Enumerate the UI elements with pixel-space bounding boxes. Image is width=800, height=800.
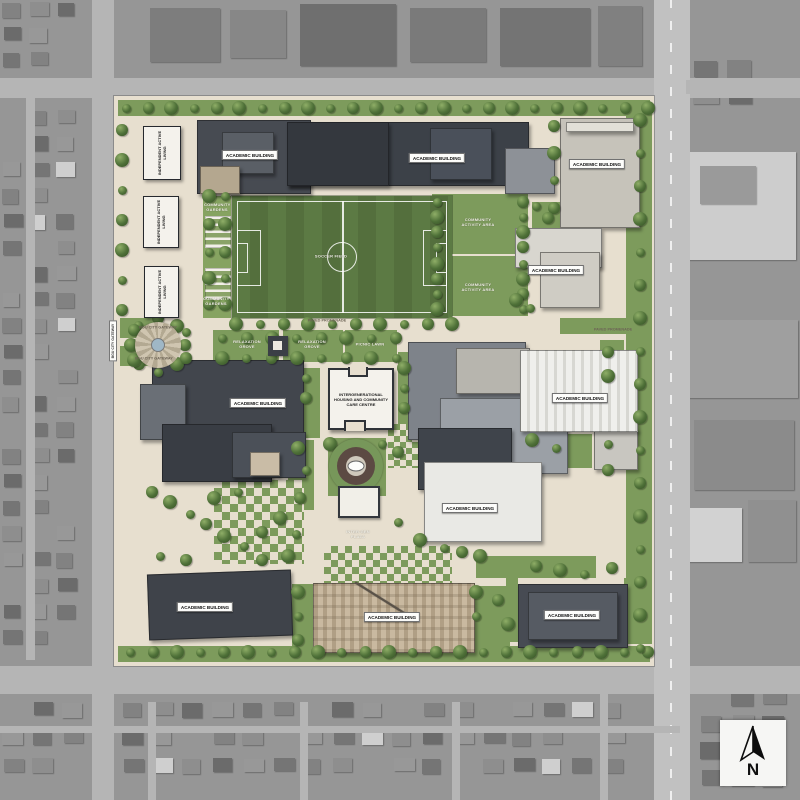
tree xyxy=(530,104,539,113)
tree xyxy=(289,646,301,658)
label-bgu-city-gateway-edge: BGU CITY GATEWAY xyxy=(109,321,117,362)
tree xyxy=(202,189,216,203)
building-roof xyxy=(594,428,638,470)
tree xyxy=(492,594,504,606)
aerial-house xyxy=(57,605,75,619)
building-roof xyxy=(566,122,634,132)
independent-active-living-building-2: INDEPENDENT ACTIVE LIVING xyxy=(143,196,179,248)
intergenerational-centre-building: INTERGENERATIONAL HOUSING AND COMMUNITY … xyxy=(328,368,394,430)
tree xyxy=(182,328,191,337)
tree xyxy=(279,102,291,114)
road xyxy=(26,98,35,660)
north-letter: N xyxy=(747,760,759,780)
aerial-building xyxy=(598,6,642,66)
tree xyxy=(634,477,646,489)
tree xyxy=(392,354,401,363)
tree xyxy=(400,320,409,329)
tree xyxy=(207,491,221,505)
road xyxy=(300,702,308,800)
aerial-building xyxy=(410,8,486,62)
label-academic-building-top-right: ACADEMIC BUILDING xyxy=(569,159,625,169)
tree xyxy=(400,384,409,393)
aerial-house xyxy=(3,162,20,176)
tree xyxy=(390,332,402,344)
tree xyxy=(413,533,427,547)
inter-gen-plaza-pavilion xyxy=(338,486,380,518)
tree xyxy=(519,260,528,269)
building-roof xyxy=(560,118,640,228)
tree xyxy=(347,102,359,114)
aerial-house xyxy=(3,501,19,515)
tree xyxy=(473,549,487,563)
aerial-house xyxy=(2,3,20,18)
road xyxy=(0,726,680,733)
tree xyxy=(408,648,417,657)
building-roof xyxy=(540,252,600,308)
aerial-house xyxy=(4,214,23,227)
aerial-house xyxy=(34,702,53,715)
tree xyxy=(146,486,158,498)
tree xyxy=(469,585,483,599)
label-relaxation-grove-1: RELAXATION GROVE xyxy=(230,339,264,349)
tree xyxy=(415,102,427,114)
tree xyxy=(633,113,647,127)
tree xyxy=(483,102,495,114)
tree xyxy=(548,120,560,132)
aerial-house xyxy=(274,758,295,771)
aerial-house xyxy=(243,703,261,717)
aerial-house xyxy=(274,702,293,715)
aerial-house xyxy=(124,759,144,772)
tree xyxy=(392,446,404,458)
tree xyxy=(122,104,131,113)
tree xyxy=(505,101,519,115)
aerial-house xyxy=(3,370,20,384)
aerial-house xyxy=(394,758,415,771)
label-academic-building-left-middle: ACADEMIC BUILDING xyxy=(230,398,286,408)
tree xyxy=(636,149,645,158)
tree xyxy=(291,441,305,455)
tree xyxy=(291,585,305,599)
label-academic-building-top-center: ACADEMIC BUILDING xyxy=(409,153,465,163)
aerial-house xyxy=(123,703,141,717)
label-relaxation-grove-2: RELAXATION GROVE xyxy=(295,339,329,349)
label-academic-building-right-middle: ACADEMIC BUILDING xyxy=(552,393,608,403)
tree xyxy=(373,317,387,331)
aerial-house xyxy=(572,702,593,717)
tree xyxy=(433,290,442,299)
tree xyxy=(526,304,535,313)
aerial-house xyxy=(2,526,21,541)
tree xyxy=(551,102,563,114)
independent-active-living-label-2: INDEPENDENT ACTIVE LIVING xyxy=(156,199,166,245)
tree xyxy=(221,274,230,283)
aerial-house xyxy=(2,189,18,204)
tree xyxy=(326,104,335,113)
road xyxy=(686,80,800,94)
tree xyxy=(115,243,129,257)
aerial-house xyxy=(58,110,75,123)
tree xyxy=(186,510,195,519)
tree xyxy=(154,368,163,377)
independent-active-living-building-1: INDEPENDENT ACTIVE LIVING xyxy=(143,126,181,180)
road xyxy=(600,694,608,800)
tree xyxy=(501,617,515,631)
tree xyxy=(430,257,444,271)
tree xyxy=(190,104,199,113)
campus-master-plan: INDEPENDENT ACTIVE LIVING INDEPENDENT AC… xyxy=(0,0,800,800)
tree xyxy=(294,492,306,504)
tree xyxy=(242,354,251,363)
tree xyxy=(594,645,608,659)
aerial-house xyxy=(33,731,51,745)
garden-center-marker xyxy=(348,461,365,472)
tree xyxy=(292,530,301,539)
label-academic-building-right-upper: ACADEMIC BUILDING xyxy=(528,265,584,275)
label-community-gardens-2: COMMUNITY GARDENS xyxy=(203,296,229,306)
tree xyxy=(218,334,227,343)
tree xyxy=(431,226,443,238)
tree xyxy=(369,101,383,115)
tree xyxy=(620,102,632,114)
tree xyxy=(118,186,127,195)
aerial-house xyxy=(513,702,532,716)
tree xyxy=(633,311,647,325)
tree xyxy=(636,347,645,356)
tree xyxy=(573,101,587,115)
road xyxy=(452,702,460,800)
tree xyxy=(633,509,647,523)
tree xyxy=(462,104,471,113)
tree xyxy=(267,648,276,657)
tree xyxy=(350,318,362,330)
tree xyxy=(219,246,231,258)
tree xyxy=(205,248,214,257)
label-inter-gen-plaza: INTER-GEN PLAZA xyxy=(343,529,373,539)
tree xyxy=(215,351,229,365)
aerial-house xyxy=(514,758,535,771)
independent-active-living-label-3: INDEPENDENT ACTIVE LIVING xyxy=(156,269,166,315)
tree xyxy=(601,369,615,383)
tree xyxy=(525,433,539,447)
tree xyxy=(378,440,387,449)
tree xyxy=(430,302,444,316)
aerial-house xyxy=(57,526,74,540)
aerial-house xyxy=(572,758,591,773)
tree xyxy=(163,495,177,509)
tree xyxy=(509,293,523,307)
aerial-house xyxy=(57,397,75,411)
tree xyxy=(126,648,135,657)
tree xyxy=(292,634,304,646)
tree xyxy=(430,646,442,658)
aerial-house xyxy=(58,241,74,254)
tree xyxy=(602,464,614,476)
tree xyxy=(598,104,607,113)
aerial-house xyxy=(3,630,22,644)
tree xyxy=(221,192,230,201)
tree xyxy=(433,243,442,252)
aerial-house xyxy=(424,703,444,716)
aerial-house xyxy=(363,703,381,717)
tree xyxy=(278,318,290,330)
tree xyxy=(633,212,647,226)
road xyxy=(148,702,156,800)
tree xyxy=(472,612,481,621)
aerial-building xyxy=(686,320,798,398)
aerial-building xyxy=(300,4,396,66)
label-academic-building-right-lower: ACADEMIC BUILDING xyxy=(442,503,498,513)
aerial-house xyxy=(4,474,21,487)
tree xyxy=(341,352,353,364)
tree xyxy=(294,612,303,621)
label-bgu-city-gateway-top: BGU CITY GATEWAY xyxy=(139,326,177,331)
tree xyxy=(633,410,647,424)
aerial-house xyxy=(213,758,232,772)
tree xyxy=(241,645,255,659)
aerial-house xyxy=(701,716,721,732)
tree xyxy=(634,576,646,588)
tree xyxy=(634,279,646,291)
aerial-house xyxy=(58,370,77,383)
tree xyxy=(634,180,646,192)
tree xyxy=(517,196,529,208)
tree xyxy=(604,440,613,449)
label-community-activity-area-1: COMMUNITY ACTIVITY AREA xyxy=(459,217,497,227)
tree xyxy=(430,210,444,224)
tree xyxy=(519,213,528,222)
tree xyxy=(170,645,184,659)
tree xyxy=(431,273,443,285)
aerial-house xyxy=(56,553,72,568)
tree xyxy=(302,466,311,475)
tree xyxy=(602,346,614,358)
aerial-house xyxy=(4,27,21,40)
aerial-building xyxy=(150,8,220,62)
tree xyxy=(552,444,561,453)
aerial-house xyxy=(58,578,77,591)
north-arrow-legend: N xyxy=(720,720,786,786)
tree xyxy=(422,318,434,330)
tree xyxy=(437,101,451,115)
tree xyxy=(517,241,529,253)
aerial-house xyxy=(3,293,19,307)
aerial-house xyxy=(32,758,53,773)
label-paved-promenade-right: PAVED PROMENADE xyxy=(594,328,632,333)
building-roof-striped xyxy=(520,350,638,432)
aerial-house xyxy=(56,422,73,437)
tree xyxy=(203,218,215,230)
tree xyxy=(196,648,205,657)
tree xyxy=(218,217,232,231)
gateway-pavilion xyxy=(268,336,288,356)
tree xyxy=(302,374,311,383)
tree xyxy=(218,646,230,658)
tree xyxy=(445,317,459,331)
gateway-pavilion-roof xyxy=(273,341,282,350)
label-academic-building-bottom-right: ACADEMIC BUILDING xyxy=(544,610,600,620)
tree xyxy=(530,560,542,572)
aerial-house xyxy=(4,345,22,358)
tree xyxy=(234,488,243,497)
tree xyxy=(229,317,243,331)
aerial-house xyxy=(57,266,76,280)
circular-garden-feature xyxy=(329,439,383,493)
tree xyxy=(301,101,315,115)
aerial-building xyxy=(500,8,590,66)
road-lane-marking xyxy=(670,0,672,800)
tree xyxy=(180,352,192,364)
aerial-house xyxy=(30,2,49,16)
aerial-house xyxy=(333,758,352,772)
tree xyxy=(453,645,467,659)
tree xyxy=(636,644,645,653)
tree xyxy=(116,214,128,226)
tree xyxy=(479,648,488,657)
aerial-house xyxy=(4,759,24,772)
aerial-house xyxy=(2,397,18,412)
tree xyxy=(634,378,646,390)
label-soccer-field: SOCCER FIELD xyxy=(315,254,347,259)
label-academic-building-bottom-left: ACADEMIC BUILDING xyxy=(177,602,233,612)
label-academic-building-top-left: ACADEMIC BUILDING xyxy=(222,150,278,160)
aerial-house xyxy=(542,759,560,774)
tree xyxy=(516,225,530,239)
aerial-house xyxy=(694,61,717,77)
tree xyxy=(433,198,442,207)
aerial-house xyxy=(58,3,74,16)
aerial-house xyxy=(58,449,74,462)
aerial-house xyxy=(58,318,75,331)
tree xyxy=(636,545,645,554)
tree xyxy=(217,529,231,543)
tree xyxy=(258,104,267,113)
tree xyxy=(397,361,411,375)
tree xyxy=(317,354,326,363)
independent-active-living-building-3: INDEPENDENT ACTIVE LIVING xyxy=(144,266,179,318)
tree xyxy=(398,402,410,414)
aerial-house xyxy=(2,449,20,464)
aerial-house xyxy=(2,318,21,333)
tree xyxy=(440,544,449,553)
aerial-house xyxy=(56,293,74,308)
aerial-house xyxy=(212,702,233,717)
tree xyxy=(606,562,618,574)
label-community-gardens-1: COMMUNITY GARDENS xyxy=(204,202,230,212)
tree xyxy=(394,104,403,113)
tree xyxy=(256,526,268,538)
lawn-area xyxy=(506,576,518,642)
tree xyxy=(620,648,629,657)
tree xyxy=(550,176,559,185)
label-bgu-city-gateway-bottom: BGU CITY GATEWAY xyxy=(135,357,173,362)
aerial-house xyxy=(62,703,82,718)
aerial-building xyxy=(230,10,286,58)
plaza-fountain xyxy=(151,338,165,352)
building-roof xyxy=(250,452,280,476)
tree xyxy=(382,645,396,659)
tree xyxy=(360,646,372,658)
tree xyxy=(256,320,265,329)
tree xyxy=(290,351,304,365)
aerial-house xyxy=(57,137,73,151)
independent-active-living-label-1: INDEPENDENT ACTIVE LIVING xyxy=(157,130,167,176)
aerial-house xyxy=(3,241,21,255)
label-paved-promenade-center: PAVED PROMENADE xyxy=(308,319,346,324)
aerial-house xyxy=(56,214,73,229)
aerial-house xyxy=(31,52,48,65)
road xyxy=(654,0,690,800)
building-roof xyxy=(287,122,389,186)
aerial-house xyxy=(544,703,564,716)
tree xyxy=(300,392,312,404)
tree xyxy=(115,153,129,167)
label-academic-building-bottom-center: ACADEMIC BUILDING xyxy=(364,612,420,622)
aerial-house xyxy=(3,53,19,67)
tree xyxy=(240,542,249,551)
field-goal-box-left xyxy=(237,243,248,273)
tree xyxy=(580,570,589,579)
tree xyxy=(148,646,160,658)
aerial-house xyxy=(422,759,440,774)
aerial-house xyxy=(392,731,410,746)
tree xyxy=(337,648,346,657)
tree xyxy=(532,202,541,211)
tree xyxy=(202,271,216,285)
tree xyxy=(200,518,212,530)
aerial-house xyxy=(56,162,75,177)
aerial-house xyxy=(483,759,503,773)
aerial-house xyxy=(332,702,353,717)
tree xyxy=(572,646,584,658)
tree xyxy=(118,276,127,285)
aerial-building xyxy=(686,508,742,562)
aerial-house xyxy=(244,759,264,772)
tree xyxy=(542,212,554,224)
tree xyxy=(553,563,567,577)
tree xyxy=(549,648,558,657)
tree xyxy=(143,102,155,114)
aerial-house xyxy=(154,702,173,715)
tree xyxy=(156,552,165,561)
aerial-building xyxy=(700,166,756,204)
aerial-house xyxy=(4,605,20,618)
aerial-house xyxy=(182,703,202,718)
tree xyxy=(273,511,287,525)
building-roof xyxy=(456,348,530,394)
aerial-house xyxy=(182,759,200,774)
tree xyxy=(256,554,268,566)
intergenerational-centre-label: INTERGENERATIONAL HOUSING AND COMMUNITY … xyxy=(332,372,390,426)
road xyxy=(92,0,114,800)
tree xyxy=(636,446,645,455)
tree xyxy=(211,102,223,114)
aerial-building xyxy=(694,420,794,490)
tree xyxy=(281,549,295,563)
aerial-house xyxy=(29,28,47,43)
aerial-building xyxy=(748,500,796,562)
aerial-house xyxy=(512,731,530,746)
tree xyxy=(116,124,128,136)
tree xyxy=(180,554,192,566)
tree xyxy=(633,608,647,622)
aerial-house xyxy=(4,553,22,566)
tree xyxy=(456,546,468,558)
tree xyxy=(636,248,645,257)
label-community-activity-area-2: COMMUNITY ACTIVITY AREA xyxy=(459,282,497,292)
tree xyxy=(394,518,403,527)
tree xyxy=(116,304,128,316)
